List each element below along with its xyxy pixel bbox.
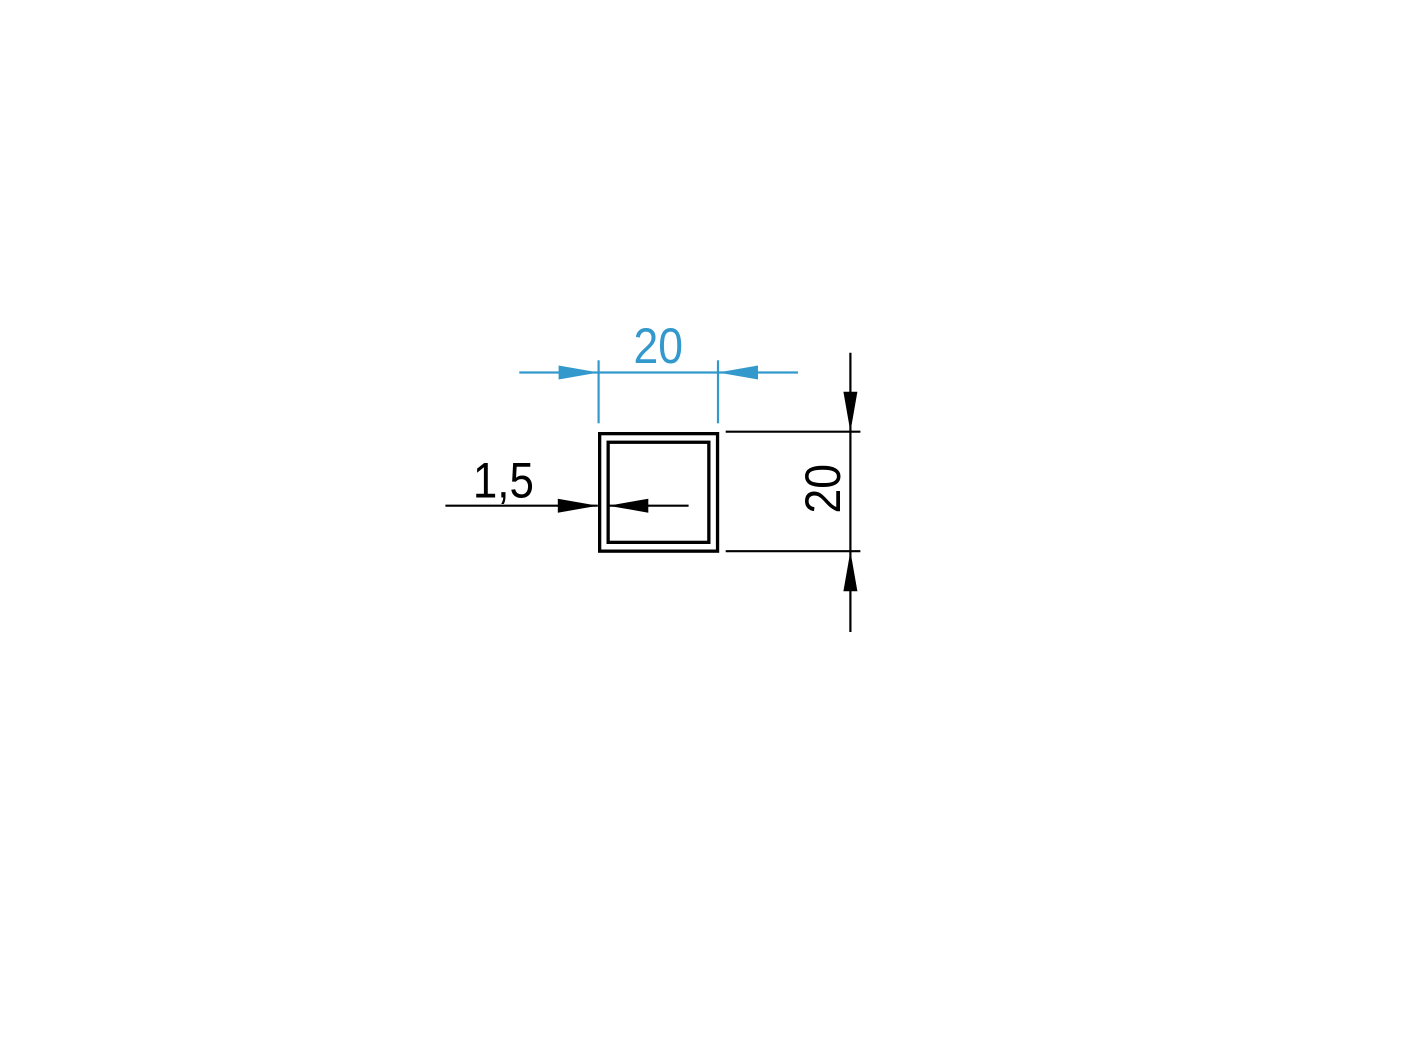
svg-text:1,5: 1,5: [473, 453, 534, 509]
svg-text:20: 20: [634, 318, 684, 374]
svg-text:20: 20: [795, 464, 851, 514]
